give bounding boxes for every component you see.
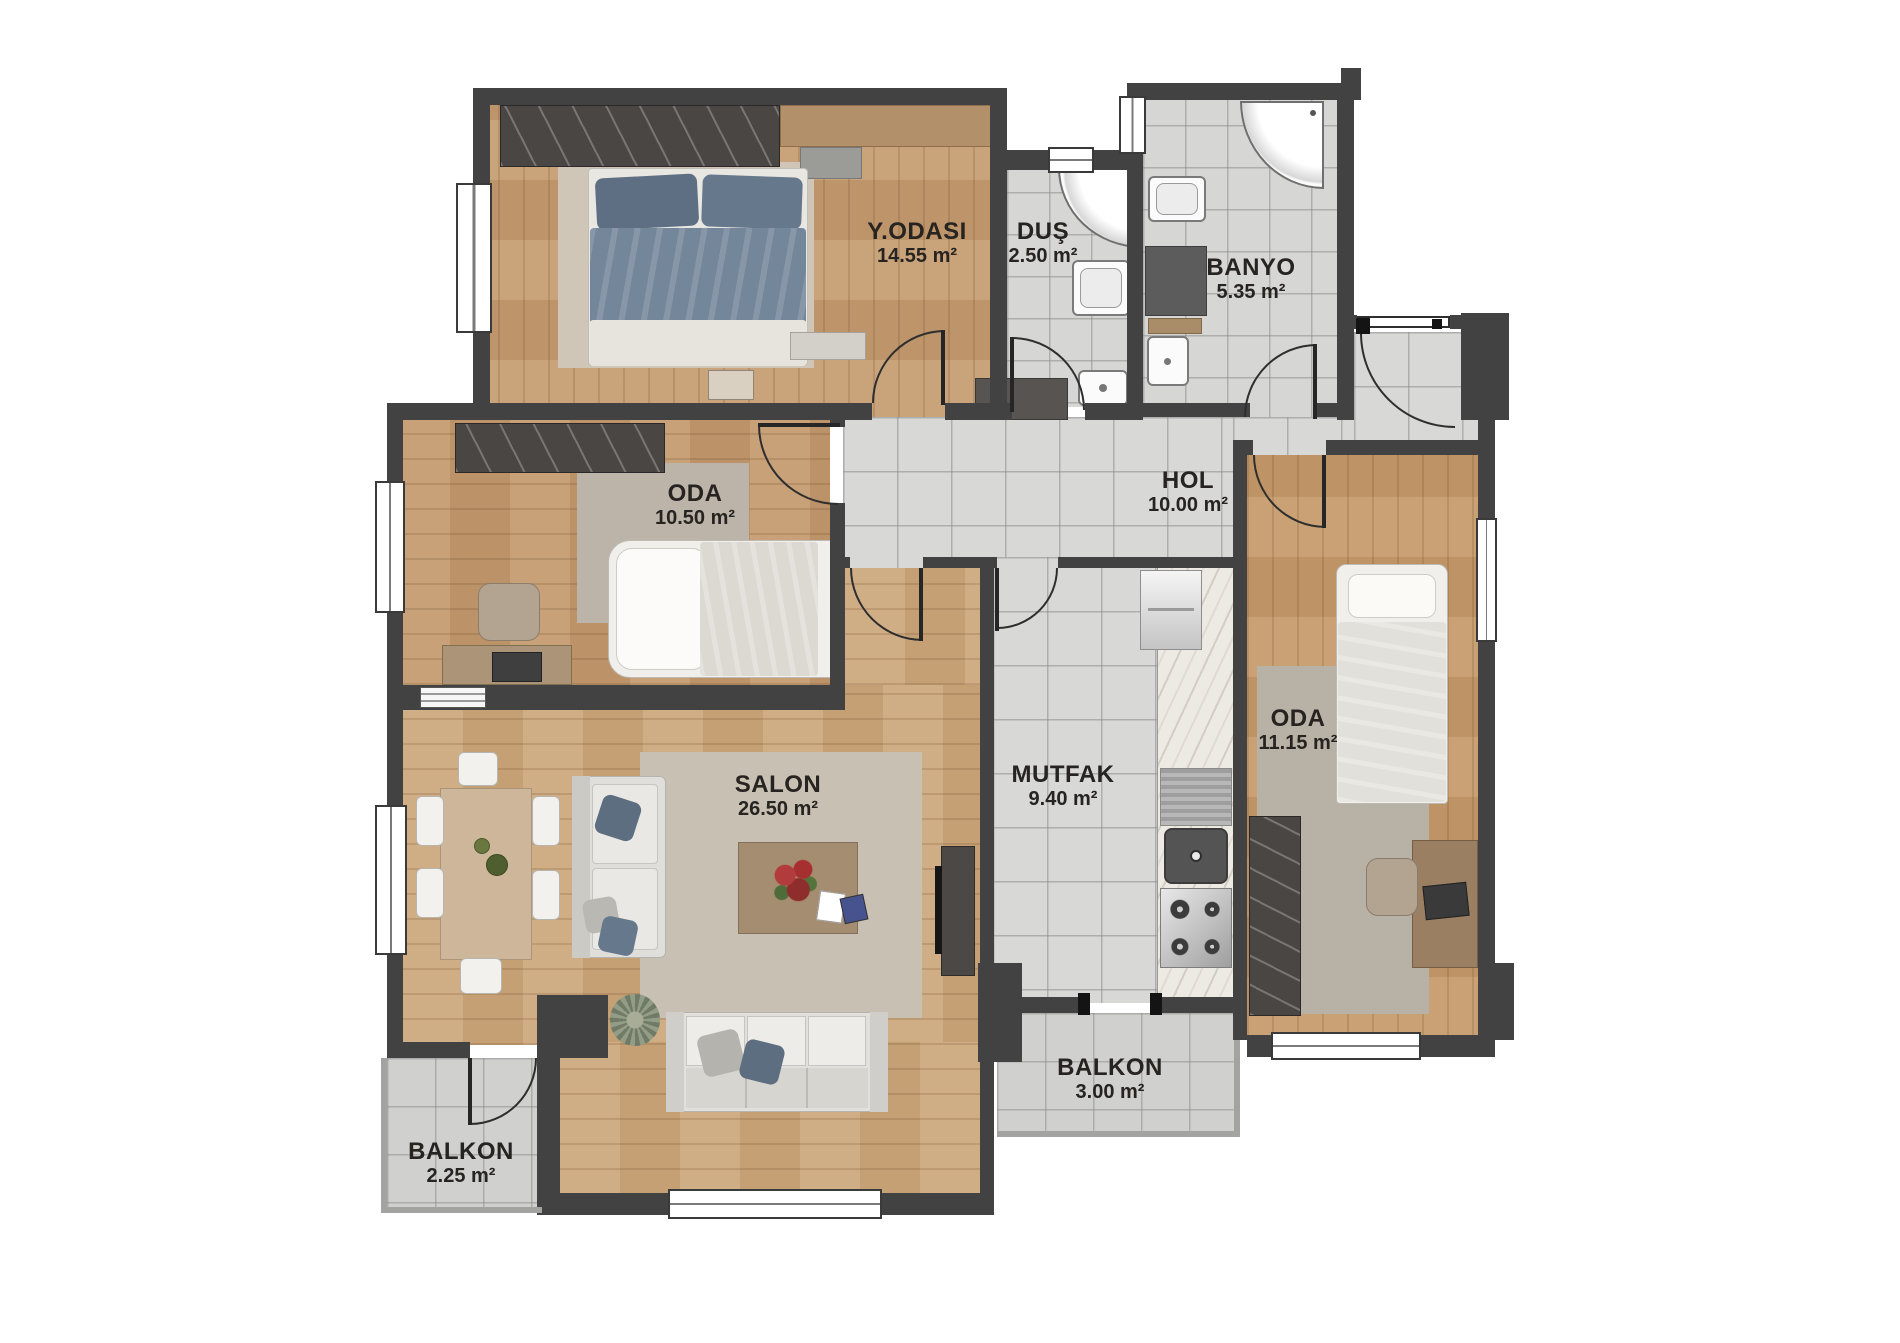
door-leaf (468, 1058, 472, 1125)
laptop (1422, 882, 1469, 920)
wall-segment (387, 403, 403, 483)
chimney-block (1341, 68, 1361, 100)
room-name: MUTFAK (1012, 762, 1115, 788)
wall-segment (387, 403, 872, 420)
wall-segment (1421, 1035, 1495, 1057)
door-leaf (995, 568, 999, 631)
room-area: 14.55 m² (867, 245, 967, 267)
radiator (420, 687, 486, 708)
room-label-balkon2: BALKON 2.25 m² (408, 1139, 514, 1187)
wall-segment (1127, 83, 1343, 100)
room-area: 10.50 m² (655, 507, 735, 529)
dining-chair (460, 958, 502, 994)
wall-segment (880, 1193, 994, 1215)
wall-segment (1326, 440, 1478, 455)
laptop (492, 652, 542, 682)
room-name: Y.ODASI (867, 219, 967, 245)
table-decor (486, 854, 508, 876)
room-label-mutfak: MUTFAK 9.40 m² (1012, 762, 1115, 810)
room-area: 3.00 m² (1057, 1081, 1163, 1103)
tv-console (941, 846, 975, 976)
door-hinge (1356, 318, 1370, 334)
bed-sheet (590, 320, 806, 366)
balcony-railing (1234, 1040, 1240, 1137)
wall-segment (1247, 1035, 1271, 1057)
stove (1160, 888, 1232, 968)
wardrobe (500, 105, 780, 167)
wall-segment (1478, 420, 1495, 520)
pillar (1461, 313, 1509, 420)
room-area: 5.35 m² (1206, 281, 1295, 303)
balcony-door-jamb (1150, 993, 1162, 1015)
dining-table (440, 788, 532, 960)
bed-duvet (590, 228, 806, 324)
door-leaf (758, 423, 840, 427)
wall-segment (1058, 557, 1233, 568)
potted-plant (610, 994, 660, 1046)
room-name: BANYO (1206, 255, 1295, 281)
bed-pillow (616, 548, 708, 670)
window (1119, 96, 1146, 154)
wall-segment (1337, 83, 1354, 420)
wall-segment (1143, 403, 1250, 417)
room-area: 2.50 m² (1009, 245, 1078, 267)
room-area: 11.15 m² (1259, 732, 1338, 754)
wall-segment (1317, 403, 1343, 417)
sofa-armrest (666, 1012, 684, 1112)
room-area: 26.50 m² (735, 798, 822, 820)
window (1476, 518, 1497, 642)
wall-segment (1337, 315, 1357, 329)
tv-screen (935, 866, 942, 954)
balcony-railing (381, 1058, 387, 1213)
office-chair (1366, 858, 1418, 916)
drainboard (1160, 768, 1232, 826)
wall-segment (830, 503, 845, 710)
bed-duvet (1338, 622, 1446, 802)
room-area: 10.00 m² (1148, 494, 1228, 516)
window (375, 481, 405, 613)
bench (790, 332, 866, 360)
balcony-railing (381, 1207, 542, 1213)
door-leaf (919, 568, 923, 641)
room-name: BALKON (1057, 1055, 1163, 1081)
door-latch (1432, 319, 1442, 329)
wall-segment (387, 1042, 470, 1058)
wall-segment (980, 557, 994, 1215)
room-label-banyo: BANYO 5.35 m² (1206, 255, 1295, 303)
window (456, 183, 492, 333)
fridge-handle (1148, 608, 1194, 611)
wall-segment (990, 105, 1007, 420)
wall-segment (387, 611, 403, 807)
window (375, 805, 407, 955)
room-name: ODA (1259, 706, 1338, 732)
dining-chair (416, 796, 444, 846)
bathroom-vanity (1145, 246, 1207, 316)
room-label-balkon3: BALKON 3.00 m² (1057, 1055, 1163, 1103)
sofa-armrest (870, 1012, 888, 1112)
room-label-dus: DUŞ 2.50 m² (1009, 219, 1078, 267)
window (1048, 147, 1094, 173)
room-label-salon: SALON 26.50 m² (735, 772, 822, 820)
toilet-seat (1156, 183, 1198, 215)
dining-chair (532, 796, 560, 846)
wall-segment (537, 1193, 670, 1215)
nightstand (708, 370, 754, 400)
bed-pillow (1348, 574, 1436, 618)
chimney-block (537, 995, 608, 1058)
room-name: HOL (1148, 468, 1228, 494)
door-leaf (1010, 337, 1014, 412)
faucet-icon (1190, 850, 1202, 862)
sofa-cushion (808, 1016, 866, 1066)
window (668, 1189, 882, 1219)
door-leaf (1322, 455, 1326, 528)
wall-segment (1157, 997, 1233, 1013)
room-label-yodasi: Y.ODASI 14.55 m² (867, 219, 967, 267)
room-name: DUŞ (1009, 219, 1078, 245)
wall-segment (1233, 440, 1247, 1040)
dining-chair (532, 870, 560, 920)
vanity-shelf (1148, 318, 1202, 334)
bed-pillow (595, 173, 700, 230)
dining-chair (416, 868, 444, 918)
shelf (780, 105, 1007, 147)
balcony-railing (997, 1131, 1240, 1137)
sink-dot (1164, 358, 1171, 365)
wardrobe (1249, 816, 1301, 1016)
pillar (1478, 963, 1514, 1040)
wall-segment (537, 1058, 560, 1215)
window (1271, 1032, 1421, 1060)
washer-dot (1099, 384, 1107, 392)
tub-drain (1310, 110, 1316, 116)
wall-segment (473, 88, 1007, 105)
wall-segment (993, 997, 1083, 1013)
door-leaf (941, 330, 945, 405)
room-label-hol: HOL 10.00 m² (1148, 468, 1228, 516)
room-name: ODA (655, 481, 735, 507)
table-decor (474, 838, 490, 854)
room-label-oda2: ODA 11.15 m² (1259, 706, 1338, 754)
office-chair (478, 583, 540, 641)
room-label-oda1: ODA 10.50 m² (655, 481, 735, 529)
dining-chair (458, 752, 498, 786)
throw-pillow (597, 915, 640, 958)
room-name: SALON (735, 772, 822, 798)
toilet-seat (1080, 268, 1122, 308)
room-name: BALKON (408, 1139, 514, 1165)
room-area: 9.40 m² (1012, 788, 1115, 810)
wall-segment (1085, 403, 1143, 420)
magazine (840, 894, 869, 924)
bed-pillow (701, 174, 803, 229)
bed-duvet (700, 542, 818, 676)
room-area: 2.25 m² (408, 1165, 514, 1187)
dresser (800, 147, 862, 179)
balcony-door-jamb (1078, 993, 1090, 1015)
floor-plan: Y.ODASI 14.55 m² DUŞ 2.50 m² BANYO 5.35 … (0, 0, 1900, 1343)
wardrobe (455, 423, 665, 473)
door-leaf (1313, 344, 1317, 419)
wall-segment (1007, 150, 1048, 170)
